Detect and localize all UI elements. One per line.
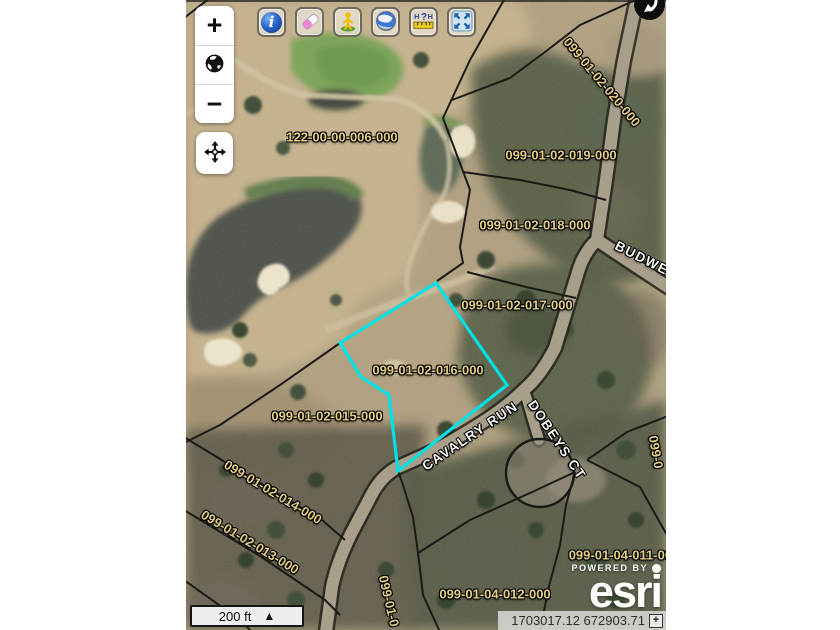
parcel-label: 099-01-02-015-000	[271, 409, 382, 424]
zoom-control-panel: + −	[195, 6, 234, 123]
google-earth-button[interactable]	[371, 7, 400, 37]
parcel-label: 099-01-04-011-000	[569, 548, 666, 563]
full-extent-icon	[451, 10, 473, 35]
earth-globe-icon	[375, 10, 397, 35]
identify-button[interactable]: i	[257, 7, 286, 37]
erase-button[interactable]	[295, 7, 324, 37]
parcel-label: 122-00-00-006-000	[286, 130, 397, 145]
info-icon: i	[261, 12, 282, 33]
eraser-icon	[299, 10, 321, 35]
map-viewport[interactable]: 122-00-00-006-000 099-01-02-020-000 099-…	[186, 0, 666, 630]
map-border	[186, 0, 666, 2]
parcel-label: 099-01-02-018-000	[479, 218, 590, 233]
measure-button[interactable]: H ? H	[409, 7, 438, 37]
pan-crosshair-icon	[204, 141, 226, 166]
satellite-basemap	[186, 0, 666, 630]
svg-text:?: ?	[421, 12, 427, 23]
parcel-label: 099-01-04-012-000	[439, 587, 550, 602]
parcel-label: 099-01-02-019-000	[505, 148, 616, 163]
plus-box-icon[interactable]: +	[649, 614, 663, 628]
zoom-out-button[interactable]: −	[195, 84, 234, 123]
scalebar[interactable]: 200 ft ▲	[190, 605, 304, 627]
scalebar-label: 200 ft	[219, 609, 252, 624]
app-window: 122-00-00-006-000 099-01-02-020-000 099-…	[0, 0, 840, 630]
collapse-arrow-icon	[634, 8, 665, 23]
pan-button[interactable]	[196, 132, 233, 174]
selected-parcel-label: 099-01-02-016-000	[372, 363, 483, 378]
svg-text:H: H	[414, 12, 419, 21]
measure-ruler-icon: H ? H	[412, 10, 435, 34]
coordinate-readout: 1703017.12 672903.71	[511, 613, 645, 628]
pegman-icon	[337, 10, 359, 35]
svg-text:H: H	[428, 12, 433, 21]
overview-toggle-button[interactable]	[634, 0, 665, 20]
full-extent-button[interactable]	[447, 7, 476, 37]
zoom-in-button[interactable]: +	[195, 6, 234, 45]
basemap-globe-button[interactable]	[195, 45, 234, 84]
globe-icon	[204, 50, 225, 81]
toolbar: i	[257, 7, 476, 37]
street-view-button[interactable]	[333, 7, 362, 37]
parcel-label: 099-01-02-017-000	[461, 298, 572, 313]
triangle-up-icon[interactable]: ▲	[263, 610, 275, 622]
coordinate-bar: 1703017.12 672903.71 +	[498, 611, 666, 630]
